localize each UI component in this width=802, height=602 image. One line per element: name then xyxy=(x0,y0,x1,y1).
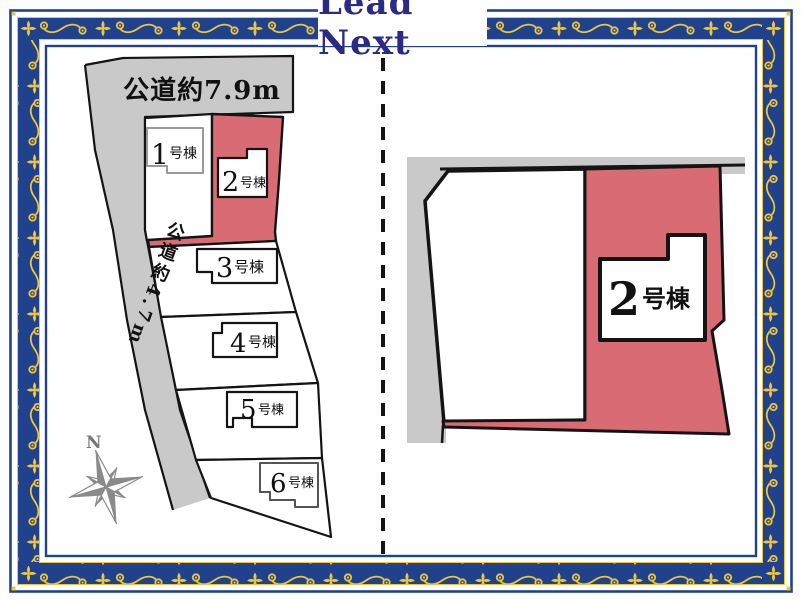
road-top-label: 公道約7.9m xyxy=(120,70,284,107)
detail-neighbor-plot xyxy=(425,169,585,423)
border-band-bottom xyxy=(17,562,785,585)
compass-rose xyxy=(59,440,153,534)
border-band-right xyxy=(762,40,785,562)
detail-plan: 2 号棟 xyxy=(407,157,745,443)
site-plan: 1 号棟 2 号棟 3 号棟 4 号棟 5 号棟 6 号棟 xyxy=(59,56,331,537)
flyer-canvas: 1 号棟 2 号棟 3 号棟 4 号棟 5 号棟 6 号棟 xyxy=(0,0,802,602)
border-band-left xyxy=(17,40,40,562)
compass-cardinal-points xyxy=(59,440,153,534)
compass-north-label: N xyxy=(86,433,102,453)
title-box: Lead Next xyxy=(318,0,487,46)
brand-title: Lead Next xyxy=(318,0,487,63)
